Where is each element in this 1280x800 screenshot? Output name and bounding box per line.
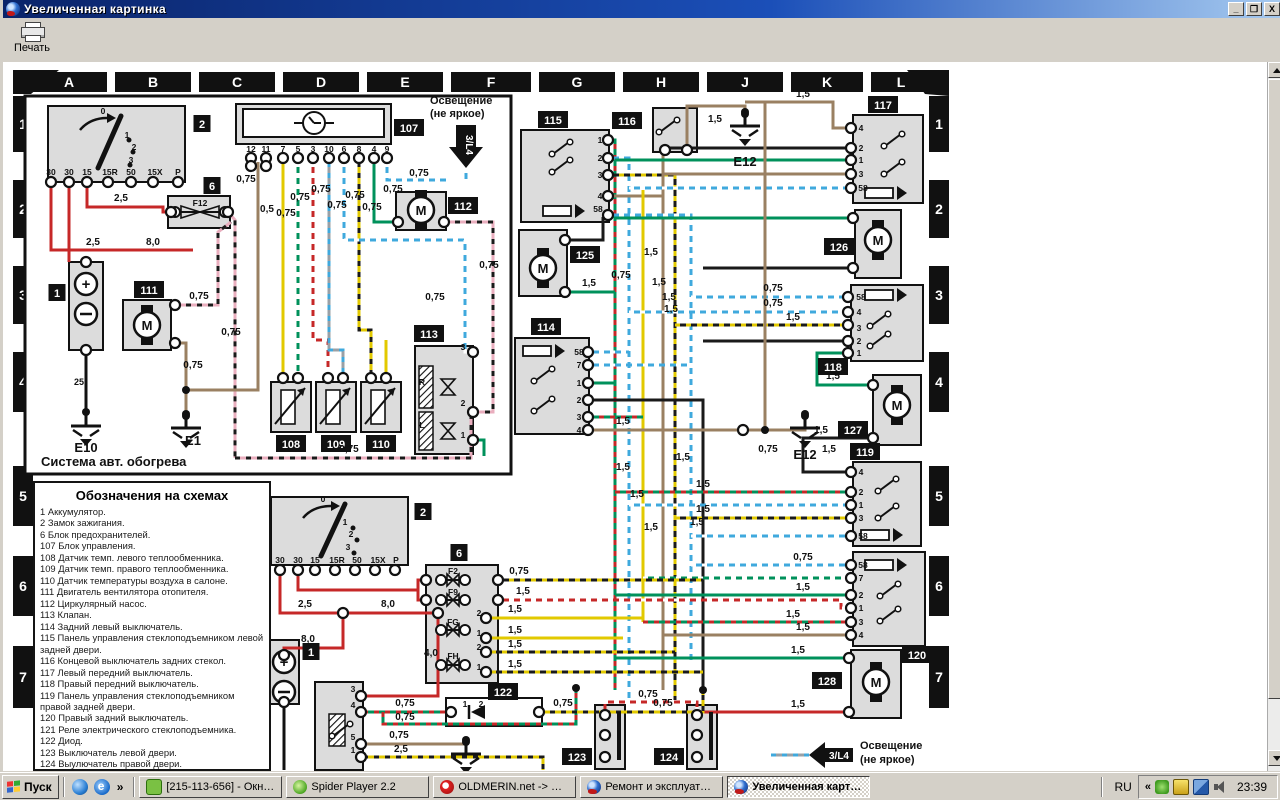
label: 1 <box>477 628 482 638</box>
label: 0,75 <box>236 174 256 185</box>
windows-flag-icon <box>7 780 21 793</box>
pin <box>324 153 334 163</box>
system-tray: RU « 23:39 <box>1095 776 1280 798</box>
switch-contact <box>549 366 555 372</box>
switch-contact <box>885 331 891 337</box>
pin <box>369 153 379 163</box>
label: 2 <box>461 398 466 408</box>
coil-symbol <box>419 366 433 408</box>
label: 1 <box>859 603 864 613</box>
pin <box>692 730 702 740</box>
pin <box>846 560 856 570</box>
label: 10 <box>324 144 334 154</box>
label: 30 <box>293 555 303 565</box>
pin <box>846 590 856 600</box>
fuse-terminal <box>460 660 470 670</box>
pin <box>600 710 610 720</box>
start-button[interactable]: Пуск <box>2 775 59 799</box>
label: 1 <box>577 378 582 388</box>
label: + <box>82 276 91 293</box>
pin <box>421 595 431 605</box>
pin <box>393 217 403 227</box>
label: K <box>822 74 832 90</box>
pin <box>278 373 288 383</box>
label: 114 <box>537 322 556 334</box>
label: 107 <box>400 123 418 135</box>
label: 0,75 <box>425 292 445 303</box>
label: 1 <box>477 662 482 672</box>
pin <box>738 425 748 435</box>
label: 1,5 <box>786 312 800 323</box>
switch-contact <box>549 169 555 175</box>
label: H <box>656 74 666 90</box>
label: 1,5 <box>508 639 522 650</box>
switch-contact <box>899 159 905 165</box>
switch-contact <box>549 396 555 402</box>
label: 3 <box>351 684 356 694</box>
switch-contact <box>899 131 905 137</box>
legend-item-7: 111 Двигатель вентилятора отопителя. <box>40 586 264 597</box>
pin <box>310 565 320 575</box>
label: 58 <box>858 183 868 193</box>
label: 4 <box>935 374 943 390</box>
junction <box>182 386 190 394</box>
label: 0,75 <box>763 283 783 294</box>
pin <box>126 177 136 187</box>
label: 7 <box>281 144 286 154</box>
restore-button[interactable]: ❐ <box>1246 2 1262 16</box>
legend-item-19: 123 Выключатель левой двери. <box>40 747 264 758</box>
taskbar-button-2[interactable]: OLDMERIN.net -> Элект... <box>433 776 576 798</box>
label: 0,75 <box>221 327 241 338</box>
legend-item-8: 112 Циркулярный насос. <box>40 598 264 609</box>
label: 1,5 <box>508 659 522 670</box>
pin <box>846 467 856 477</box>
pin <box>846 183 856 193</box>
pin <box>338 373 348 383</box>
pin <box>583 360 593 370</box>
label: 30 <box>275 555 285 565</box>
label: 3 <box>129 155 134 165</box>
pin <box>843 336 853 346</box>
pin <box>846 630 856 640</box>
label: 8,0 <box>301 634 315 645</box>
resistor-symbol <box>865 188 893 198</box>
label: 8 <box>357 144 362 154</box>
label: 1 <box>343 517 348 527</box>
label: M <box>892 398 903 413</box>
quicklaunch-chevron[interactable]: » <box>117 780 124 794</box>
label: 1,5 <box>630 489 644 500</box>
pin <box>682 145 692 155</box>
label: 3/L4 <box>829 751 849 762</box>
label: 3 <box>859 617 864 627</box>
label: 113 <box>420 329 438 341</box>
pin <box>261 161 271 171</box>
pin <box>481 633 491 643</box>
label: 127 <box>844 425 862 437</box>
label: 58 <box>858 560 868 570</box>
label: 50 <box>126 167 136 177</box>
tray-app-icon[interactable] <box>1155 780 1169 794</box>
label: 6 <box>19 578 27 594</box>
label: B <box>148 74 158 90</box>
label: 5 <box>19 488 27 504</box>
battery-icon[interactable] <box>1173 779 1189 795</box>
label: 15R <box>329 555 345 565</box>
label: 1,5 <box>826 371 840 382</box>
pin <box>433 608 443 618</box>
vertical-scrollbar[interactable] <box>1267 62 1280 771</box>
quicklaunch-globe-icon[interactable] <box>72 779 88 795</box>
pin <box>583 378 593 388</box>
pin <box>603 191 613 201</box>
pin <box>846 573 856 583</box>
label: 1 <box>308 647 314 659</box>
pin <box>846 123 856 133</box>
ignition-detent <box>355 538 360 543</box>
printer-icon <box>19 22 45 40</box>
legend-item-15: 119 Панель управления стеклоподъемником … <box>40 690 264 713</box>
pin <box>350 565 360 575</box>
pin <box>603 153 613 163</box>
label: 11 <box>262 144 271 154</box>
label: 2,5 <box>114 193 128 204</box>
app-window: Увеличенная картинка _ ❐ X Печать ABCDEF… <box>0 0 1280 772</box>
label: 0,75 <box>345 190 365 201</box>
label: 0,75 <box>409 168 429 179</box>
label: 0,75 <box>183 360 203 371</box>
pin <box>843 292 853 302</box>
taskbar-button-label: [215-113-656] - Окно соо... <box>166 781 275 793</box>
pin <box>293 565 303 575</box>
pin <box>468 347 478 357</box>
label: 0,75 <box>290 192 310 203</box>
pin <box>308 153 318 163</box>
label: 128 <box>818 676 836 688</box>
taskbar-button-0[interactable]: [215-113-656] - Окно соо... <box>139 776 282 798</box>
label: 1,5 <box>690 517 704 528</box>
label: (не яркое) <box>430 108 485 120</box>
legend-item-13: 117 Левый передний выключатель. <box>40 667 264 678</box>
close-button[interactable]: X <box>1264 2 1280 16</box>
pin <box>439 217 449 227</box>
label: 9 <box>385 144 390 154</box>
label: 115 <box>544 115 562 127</box>
legend-item-4: 108 Датчик темп. левого теплообменника. <box>40 552 264 563</box>
switch-contact <box>877 593 883 599</box>
label: 30 <box>64 167 74 177</box>
pin <box>103 177 113 187</box>
label: 111 <box>140 285 157 297</box>
switch-contact <box>549 151 555 157</box>
label: 7 <box>859 573 864 583</box>
label: 0,75 <box>611 270 631 281</box>
label: 1,5 <box>508 604 522 615</box>
label: 6 <box>209 181 215 193</box>
start-label: Пуск <box>24 780 52 794</box>
label: M <box>871 675 882 690</box>
switch-contact <box>893 476 899 482</box>
label: 3 <box>461 342 466 352</box>
label: 1,5 <box>814 425 828 436</box>
volume-icon[interactable] <box>1213 780 1227 794</box>
label: 0,75 <box>389 730 409 741</box>
label: (не яркое) <box>860 754 915 766</box>
pin <box>381 373 391 383</box>
minimize-button[interactable]: _ <box>1228 2 1244 16</box>
legend-item-20: 124 Выулючатель правой двери. <box>40 758 264 769</box>
label: 1,5 <box>796 89 810 100</box>
pin <box>846 500 856 510</box>
pin <box>481 613 491 623</box>
pin <box>844 653 854 663</box>
print-button[interactable]: Печать <box>9 22 55 60</box>
pin <box>356 739 366 749</box>
taskbar-button-label: Ремонт и эксплуатация ... <box>605 781 716 793</box>
label: 8,0 <box>146 237 160 248</box>
label: 2,5 <box>394 744 408 755</box>
tray-chevron[interactable]: « <box>1145 781 1151 793</box>
legend-item-3: 107 Блок управления. <box>40 540 264 551</box>
pin <box>843 348 853 358</box>
label: 4 <box>372 144 377 154</box>
pin <box>603 170 613 180</box>
pin <box>603 135 613 145</box>
pin <box>390 565 400 575</box>
label: 0,75 <box>758 444 778 455</box>
toolbar: Печать <box>3 18 1280 63</box>
label: 7 <box>935 669 943 685</box>
label: 5 <box>296 144 301 154</box>
window-title: Увеличенная картинка <box>24 2 166 16</box>
label: 1,5 <box>516 586 530 597</box>
pin <box>560 287 570 297</box>
legend-item-14: 118 Правый передний выключатель. <box>40 678 264 689</box>
switch-contact <box>329 733 335 739</box>
label: 4,0 <box>424 648 438 659</box>
label: 0,75 <box>763 298 783 309</box>
pin <box>356 691 366 701</box>
label: 122 <box>494 687 512 699</box>
junction <box>699 686 707 694</box>
label: 0,75 <box>189 291 209 302</box>
pin <box>846 155 856 165</box>
legend-item-6: 110 Датчик температуры воздуха в салоне. <box>40 575 264 586</box>
pin <box>370 565 380 575</box>
pin <box>64 177 74 187</box>
label: 12 <box>246 144 256 154</box>
label: 1,5 <box>652 277 666 288</box>
label: 1,5 <box>662 292 676 303</box>
pin <box>600 730 610 740</box>
legend-item-10: 114 Задний левый выключатель. <box>40 621 264 632</box>
switch-contact <box>895 606 901 612</box>
label: 0,75 <box>479 260 499 271</box>
label: 2 <box>859 590 864 600</box>
opera-icon <box>440 780 454 794</box>
label: 58 <box>856 292 866 302</box>
label: 3 <box>859 169 864 179</box>
label: 1,5 <box>676 452 690 463</box>
divider <box>1101 777 1103 797</box>
label: M <box>538 261 549 276</box>
label: 7 <box>19 669 27 685</box>
taskbar: Пуск » [215-113-656] - Окно соо...Spider… <box>0 772 1280 800</box>
legend-item-5: 109 Датчик темп. правого теплообменника. <box>40 563 264 574</box>
switch-contact <box>875 488 881 494</box>
label: 4 <box>859 630 864 640</box>
fuse-terminal <box>436 575 446 585</box>
coil-symbol <box>419 412 433 450</box>
pin <box>493 575 503 585</box>
switch-contact <box>867 323 873 329</box>
pin <box>583 395 593 405</box>
pin <box>534 707 544 717</box>
quicklaunch-ie-icon[interactable] <box>94 779 110 795</box>
fuse-terminal <box>460 575 470 585</box>
language-indicator[interactable]: RU <box>1115 780 1132 794</box>
label: 4 <box>598 191 603 201</box>
pin <box>846 169 856 179</box>
label: 1,5 <box>664 304 678 315</box>
label: 1,5 <box>791 645 805 656</box>
label: 1,5 <box>508 625 522 636</box>
label: G <box>572 74 583 90</box>
label: 15R <box>102 167 118 177</box>
scroll-up-button[interactable] <box>1268 62 1280 78</box>
label: 2 <box>479 699 484 709</box>
pin <box>843 320 853 330</box>
pin <box>81 257 91 267</box>
label: 6 <box>935 578 943 594</box>
junction <box>741 110 749 118</box>
label: J <box>741 74 749 90</box>
label: 8,0 <box>381 599 395 610</box>
pin <box>275 565 285 575</box>
switch-contact <box>656 129 662 135</box>
resistor-symbol <box>543 206 571 216</box>
label: P <box>175 167 181 177</box>
pin <box>843 307 853 317</box>
switch-contact <box>567 139 573 145</box>
label: 15X <box>370 555 385 565</box>
label: 0,75 <box>793 552 813 563</box>
label: 3 <box>935 287 943 303</box>
label: 1,5 <box>644 522 658 533</box>
switch-contact <box>531 408 537 414</box>
pin <box>293 153 303 163</box>
pin <box>868 380 878 390</box>
legend-item-11: 115 Панель управления стеклоподъемником … <box>40 632 264 655</box>
label: Освещение <box>430 95 492 107</box>
legend-item-1: 2 Замок зажигания. <box>40 517 264 528</box>
fuse-terminal <box>436 595 446 605</box>
legend-item-2: 6 Блок предохранителей. <box>40 529 264 540</box>
fuse-terminal <box>460 595 470 605</box>
label: C <box>232 74 242 90</box>
pin <box>603 210 613 220</box>
label: 4 <box>351 700 356 710</box>
label: 2 <box>935 201 943 217</box>
taskbar-button-3[interactable]: Ремонт и эксплуатация ... <box>580 776 723 798</box>
taskbar-button-1[interactable]: Spider Player 2.2 <box>286 776 429 798</box>
taskbar-button-label: Увеличенная карти... <box>752 781 863 793</box>
taskbar-button-label: OLDMERIN.net -> Элект... <box>458 781 569 793</box>
label: 3 <box>598 170 603 180</box>
clock: 23:39 <box>1237 780 1267 794</box>
pin <box>560 235 570 245</box>
pin <box>468 435 478 445</box>
pin <box>481 647 491 657</box>
legend-item-0: 1 Аккумулятор. <box>40 506 264 517</box>
label: Освещение <box>860 740 922 752</box>
label: 0,75 <box>276 208 296 219</box>
label: 15 <box>82 167 92 177</box>
label: 2 <box>477 608 482 618</box>
resistor-symbol <box>523 346 551 356</box>
pin <box>846 487 856 497</box>
label: 126 <box>830 242 848 254</box>
legend-item-17: 121 Реле электрического стеклоподъемника… <box>40 724 264 735</box>
label: 108 <box>282 439 300 451</box>
pin <box>848 213 858 223</box>
label: 4 <box>859 123 864 133</box>
junction <box>182 412 190 420</box>
spider-icon <box>293 780 307 794</box>
label: 3 <box>859 513 864 523</box>
scroll-thumb[interactable] <box>1268 79 1280 699</box>
label: 58 <box>858 531 868 541</box>
label: 110 <box>372 439 390 451</box>
pin <box>583 412 593 422</box>
label: 2 <box>577 395 582 405</box>
label: 2,5 <box>298 599 312 610</box>
label: 6 <box>342 144 347 154</box>
label: 3 <box>311 144 316 154</box>
label: M <box>873 233 884 248</box>
label: 0,75 <box>553 698 573 709</box>
switch-contact <box>347 721 353 727</box>
label: 1 <box>598 135 603 145</box>
scroll-down-button[interactable] <box>1268 750 1280 766</box>
pin <box>170 338 180 348</box>
label: 0,75 <box>339 444 359 455</box>
label: 30 <box>46 167 56 177</box>
label: 25 <box>74 377 84 387</box>
switch-contact <box>881 171 887 177</box>
label: 0,75 <box>509 566 529 577</box>
label: 1,5 <box>644 247 658 258</box>
label: F9 <box>448 587 458 597</box>
fuse-terminal <box>436 660 446 670</box>
taskbar-button-4[interactable]: Увеличенная карти... <box>727 776 870 798</box>
label: FG <box>447 617 459 627</box>
pin <box>46 177 56 187</box>
junction <box>572 684 580 692</box>
label: 119 <box>856 447 874 459</box>
label: 1 <box>461 430 466 440</box>
pin <box>170 300 180 310</box>
label: 2 <box>349 529 354 539</box>
label: 1,5 <box>708 114 722 125</box>
pin <box>660 145 670 155</box>
pin <box>382 153 392 163</box>
network-icon[interactable] <box>1193 779 1209 795</box>
label: 0,5 <box>260 204 274 215</box>
pin <box>339 153 349 163</box>
label: 15X <box>147 167 162 177</box>
